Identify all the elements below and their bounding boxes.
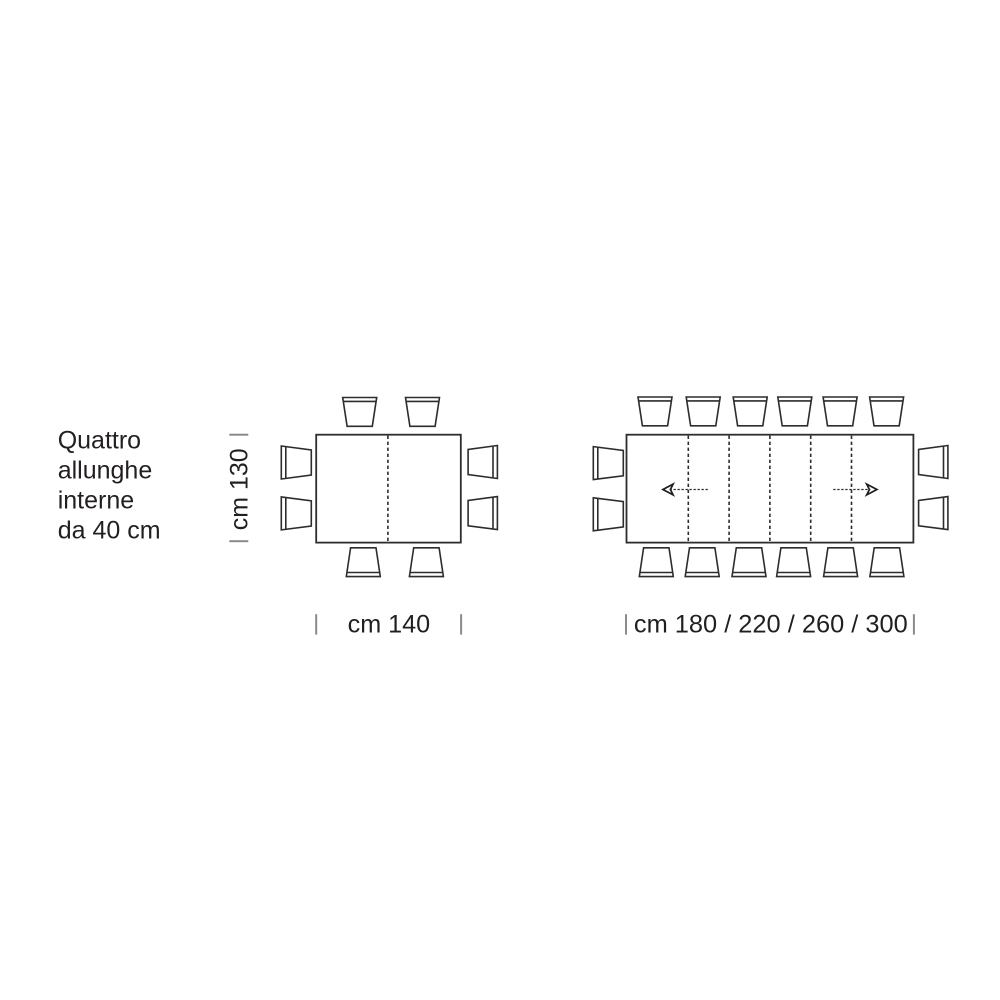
svg-text:da 40 cm: da 40 cm [58, 517, 161, 545]
svg-text:allunghe: allunghe [58, 457, 153, 485]
svg-text:cm 180 / 220 / 260 / 300: cm 180 / 220 / 260 / 300 [634, 611, 908, 639]
svg-text:cm 140: cm 140 [348, 611, 431, 639]
svg-text:Quattro: Quattro [58, 427, 141, 455]
svg-text:cm 130: cm 130 [226, 448, 254, 530]
svg-text:interne: interne [58, 487, 134, 515]
